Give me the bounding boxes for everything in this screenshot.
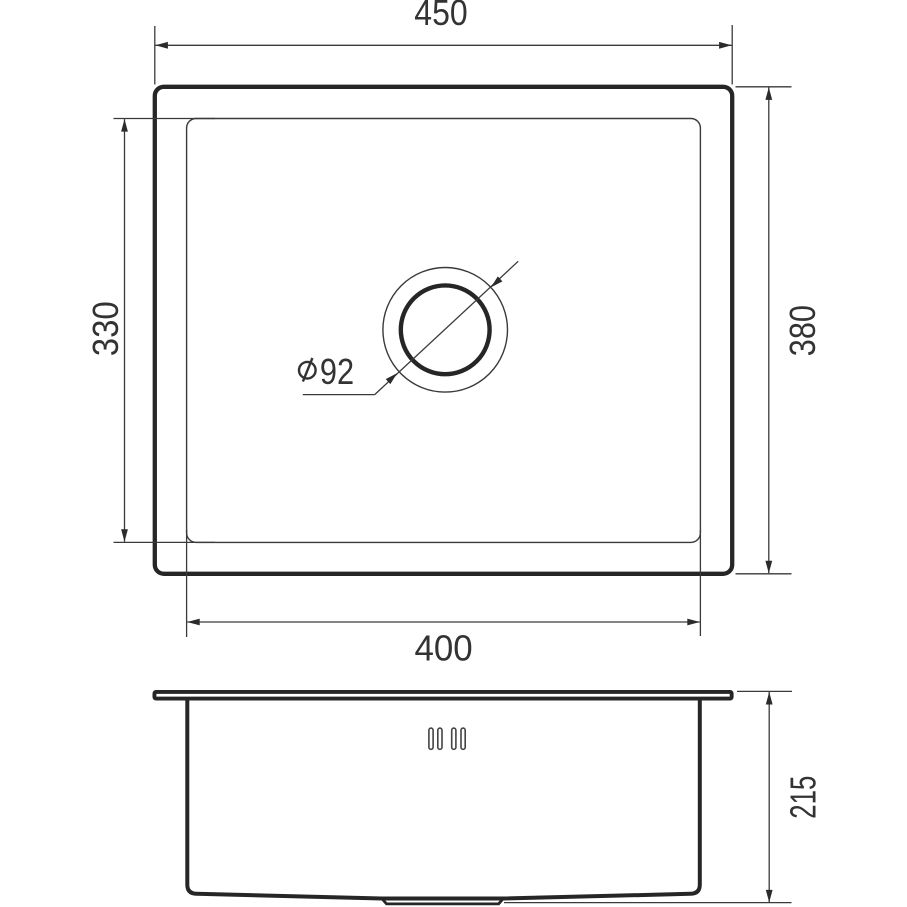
svg-text:92: 92 [320, 351, 354, 392]
svg-text:400: 400 [415, 627, 473, 668]
svg-text:380: 380 [782, 305, 823, 356]
svg-text:330: 330 [85, 301, 126, 356]
svg-text:450: 450 [414, 0, 467, 33]
svg-text:215: 215 [783, 776, 824, 819]
